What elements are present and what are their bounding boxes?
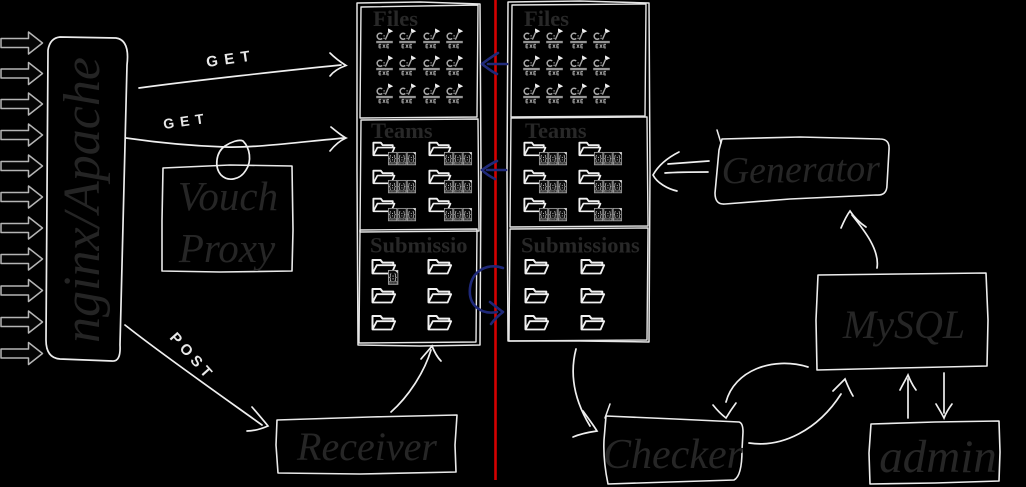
svg-text:MySQL: MySQL <box>842 302 965 347</box>
svg-text:Teams: Teams <box>371 118 433 143</box>
svg-text:Vouch: Vouch <box>178 173 278 219</box>
svg-text:Checker: Checker <box>603 432 744 478</box>
svg-text:nginx/Apache: nginx/Apache <box>54 57 111 343</box>
svg-text:Receiver: Receiver <box>296 424 437 469</box>
svg-text:Proxy: Proxy <box>178 225 276 271</box>
svg-text:Teams: Teams <box>525 118 587 143</box>
svg-text:Files: Files <box>524 6 569 31</box>
svg-text:Generator: Generator <box>721 148 880 193</box>
svg-text:Submissio: Submissio <box>370 233 468 258</box>
svg-text:Files: Files <box>373 6 418 31</box>
svg-text:admin: admin <box>879 431 997 483</box>
svg-text:Submissions: Submissions <box>521 233 640 258</box>
